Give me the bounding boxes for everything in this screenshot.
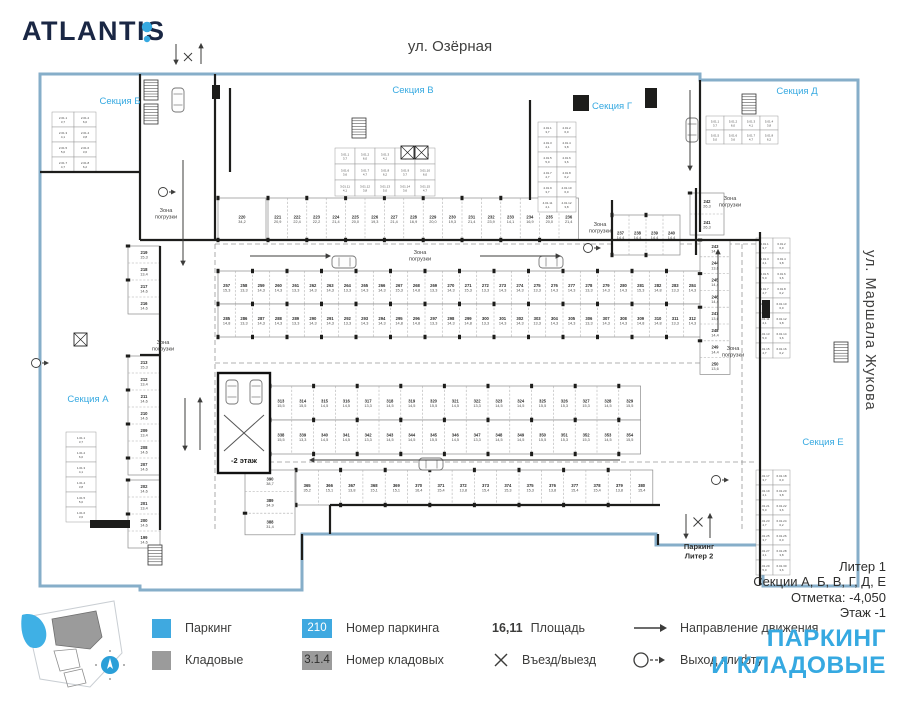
page-title: ПАРКИНГ И КЛАДОВЫЕ: [711, 625, 886, 680]
parking-stall-area: 14,3: [568, 322, 575, 326]
parking-stall-number: 241: [704, 220, 712, 225]
parking-stall-area: 14,3: [568, 289, 575, 293]
parking-stall-number: 276: [551, 283, 559, 288]
street-label-top: ул. Озёрная: [300, 38, 600, 55]
exit-liter2-label: ПаркингЛитер 2: [684, 542, 714, 561]
parking-stall-number: 285: [223, 316, 231, 321]
parking-stall-area: 15,5: [539, 438, 546, 442]
column-mark: [617, 418, 620, 422]
parking-stall-number: 299: [465, 316, 473, 321]
storage-area: 3,8: [564, 145, 569, 149]
section-label: Секция Д: [776, 86, 818, 97]
parking-stall-number: 217: [141, 284, 149, 289]
parking-stall-number: 221: [274, 215, 282, 220]
parking-row: 28514,828613,328714,328814,328913,329014…: [217, 302, 702, 339]
column-mark: [688, 192, 692, 195]
parking-stall-number: 210: [141, 411, 149, 416]
storage-area: 5,0: [762, 276, 767, 280]
parking-stall-area: 13,4: [140, 383, 147, 387]
parking-stall-number: 226: [371, 215, 379, 220]
parking-stall-area: 15,4: [437, 489, 444, 493]
parking-stall-number: 227: [391, 215, 399, 220]
parking-stall-area: 19,3: [371, 220, 378, 224]
parking-stall-area: 38,7: [266, 482, 273, 486]
parking-stall-number: 298: [447, 316, 455, 321]
parking-stall-area: 13,3: [533, 322, 540, 326]
column-mark: [389, 302, 392, 306]
parking-stall-number: 340: [321, 433, 329, 438]
parking-stall-area: 13,3: [533, 289, 540, 293]
parking-stall-area: 14,6: [140, 307, 147, 311]
parking-stall-number: 316: [343, 399, 351, 404]
entry-cross-icon: [492, 652, 510, 668]
zone-line1: Зона: [594, 222, 608, 228]
parking-stall-area: 16,9: [410, 220, 417, 224]
parking-stall-number: 303: [534, 316, 542, 321]
column-mark: [461, 196, 464, 200]
parking-stall-number: 308: [620, 316, 628, 321]
parking-stall-number: 284: [689, 283, 697, 288]
parking-stall-area: 14,5: [408, 404, 415, 408]
parking-stall-area: 15,3: [582, 438, 589, 442]
parking-stall-number: 257: [223, 283, 231, 288]
parking-stall-number: 389: [267, 498, 275, 503]
zone-line1: Зона: [727, 346, 741, 352]
parking-stall-number: 352: [583, 433, 591, 438]
column-mark: [355, 335, 358, 339]
parking-stall-number: 366: [326, 483, 334, 488]
parking-stall-number: 378: [594, 483, 602, 488]
section-label: Секция Б: [99, 96, 140, 107]
storage-area: 4,7: [762, 291, 767, 295]
parking-stall-number: 281: [637, 283, 645, 288]
parking-stall-number: 307: [603, 316, 611, 321]
parking-stall-number: 265: [361, 283, 369, 288]
parking-stall-area: 13,3: [292, 322, 299, 326]
storage-block: 2.01.13,72.01.26,02.01.34,12.01.43,82.01…: [52, 112, 96, 172]
parking-stall-number: 277: [568, 283, 576, 288]
parking-stall-number: 268: [413, 283, 421, 288]
column-mark: [312, 384, 315, 388]
parking-stall-number: 259: [258, 283, 266, 288]
parking-stall-number: 321: [452, 399, 460, 404]
column-mark: [527, 269, 530, 273]
parking-stall-area: 14,6: [140, 490, 147, 494]
parking-stall-area: 14,3: [326, 322, 333, 326]
parking-stall-area: 13,8: [460, 489, 467, 493]
stairs-icon: [834, 342, 848, 362]
column-mark: [665, 302, 668, 306]
ramp-label: -2 этаж: [231, 456, 258, 465]
storage-area: 3,7: [545, 190, 550, 194]
parking-stall-area: 13,3: [671, 322, 678, 326]
parking-stall-number: 270: [447, 283, 455, 288]
storage-block: 4.01.13,74.01.26,04.01.34,14.01.43,84.01…: [538, 122, 576, 212]
parking-stall-number: 314: [299, 399, 307, 404]
parking-stall-area: 14,8: [464, 322, 471, 326]
parking-stall-number: 390: [267, 476, 275, 481]
column-mark: [312, 418, 315, 422]
parking-stall-number: 236: [565, 215, 573, 220]
storage-area: 4,1: [762, 553, 767, 557]
parking-stall-area: 13,8: [616, 489, 623, 493]
parking-stall-area: 15,3: [504, 489, 511, 493]
stairs-icon: [742, 94, 756, 114]
parking-stall-number: 231: [468, 215, 476, 220]
wall-block: [762, 300, 770, 318]
parking-stall-number: 365: [304, 483, 312, 488]
storage-area: 6,0: [731, 123, 736, 127]
storage-area: 3,7: [762, 538, 767, 542]
column-mark: [286, 269, 289, 273]
column-mark: [617, 384, 620, 388]
parking-stall-number: 249: [712, 345, 720, 350]
column-mark: [356, 452, 359, 456]
parking-stall-area: 14,8: [654, 289, 661, 293]
zone-line1: Зона: [160, 208, 174, 214]
parking-stall-area: 14,3: [378, 322, 385, 326]
parking-stall-area: 13,3: [292, 289, 299, 293]
storage-area: 3,6: [79, 515, 84, 519]
parking-stall-area: 16,9: [526, 220, 533, 224]
parking-stall-number: 322: [474, 399, 482, 404]
storage-area: 6,0: [423, 172, 428, 176]
page-title-line2: И КЛАДОВЫЕ: [711, 652, 886, 679]
column-mark: [251, 335, 254, 339]
parking-stall-area: 14,3: [551, 289, 558, 293]
parking-stall-number: 367: [348, 483, 356, 488]
parking-stall-number: 291: [327, 316, 335, 321]
parking-stall-number: 368: [371, 483, 379, 488]
parking-stall-area: 14,3: [275, 289, 282, 293]
parking-stall-area: 14,5: [452, 404, 459, 408]
parking-stall-number: 218: [141, 267, 149, 272]
parking-stall-number: 289: [292, 316, 300, 321]
zone-line2: погрузки: [409, 257, 431, 263]
column-mark: [422, 196, 425, 200]
column-mark: [424, 335, 427, 339]
column-mark: [530, 384, 533, 388]
storage-area: 3,8: [767, 123, 772, 127]
column-mark: [527, 335, 530, 339]
parking-stall-area: 14,3: [326, 289, 333, 293]
parking-stall-number: 324: [517, 399, 525, 404]
parking-stall-area: 15,5: [539, 404, 546, 408]
column-mark: [443, 418, 446, 422]
parking-stall-area: 13,4: [140, 434, 147, 438]
storage-area: 4,1: [79, 470, 84, 474]
column-mark: [665, 269, 668, 273]
column-mark: [631, 269, 634, 273]
parking-stall-area: 20,0: [546, 220, 553, 224]
parking-stall-number: 269: [430, 283, 438, 288]
parking-stall-area: 14,5: [495, 404, 502, 408]
zone-line2: погрузки: [155, 215, 177, 221]
legend-storage-label: Кладовые: [185, 653, 243, 667]
parking-stall-area: 13,3: [473, 438, 480, 442]
parking-stall-number: 351: [561, 433, 569, 438]
parking-stall-area: 14,8: [637, 322, 644, 326]
parking-stall-number: 374: [504, 483, 512, 488]
column-mark: [243, 512, 247, 515]
parking-row: 25715,325813,325914,326014,326113,326214…: [217, 269, 702, 306]
storage-area: 3,8: [79, 485, 84, 489]
parking-stall-number: 348: [495, 433, 503, 438]
storage-area: 3,7: [343, 156, 348, 160]
storage-area: 4,7: [61, 165, 66, 169]
column-mark: [389, 269, 392, 273]
storage-area: 6,0: [779, 478, 784, 482]
parking-stall-area: 20,0: [352, 220, 359, 224]
zone-line2: погрузки: [719, 203, 741, 209]
storage-area: 3,7: [545, 130, 550, 134]
storage-area: 3,8: [363, 188, 368, 192]
parking-stall-area: 13,6: [711, 367, 718, 371]
parking-stall-area: 15,3: [464, 289, 471, 293]
parking-stall-area: 15,4: [593, 489, 600, 493]
building-outline-2: [54, 649, 80, 671]
column-mark: [607, 468, 610, 472]
column-mark: [251, 302, 254, 306]
parking-stall-area: 14,6: [140, 524, 147, 528]
lift-exit-circle: [159, 188, 168, 197]
lift-exit-icon: [632, 651, 668, 669]
parking-stall-area: 14,4: [711, 334, 718, 338]
parking-stall-number: 211: [141, 394, 148, 399]
parking-stall-number: 380: [638, 483, 646, 488]
parking-stall-area: 13,3: [671, 289, 678, 293]
parking-stall-area: 14,5: [321, 404, 328, 408]
car-body: [686, 118, 698, 142]
parking-stall-area: 14,3: [361, 322, 368, 326]
storage-area: 6,2: [779, 351, 784, 355]
storage-area: 5,0: [79, 500, 84, 504]
parking-stall-area: 19,3: [449, 220, 456, 224]
wall-block: [645, 88, 657, 108]
parking-stall-area: 13,4: [140, 273, 147, 277]
zone-line1: Зона: [157, 340, 171, 346]
storage-area: 3,8: [779, 493, 784, 497]
stairs-icon: [144, 104, 158, 124]
car-icon: [686, 118, 698, 142]
storage-area: 6,2: [779, 523, 784, 527]
parking-stall-number: 267: [396, 283, 404, 288]
car-icon: [172, 88, 184, 112]
parking-stall-number: 354: [626, 433, 634, 438]
info-sections: Секции А, Б, В, Г, Д, Е: [753, 574, 886, 589]
parking-stall-number: 208: [141, 445, 149, 450]
parking-stall-area: 14,3: [257, 322, 264, 326]
parking-stall-area: 15,5: [626, 438, 633, 442]
parking-stall-area: 21,4: [390, 220, 397, 224]
parking-stall-area: 26,3: [703, 205, 710, 209]
column-mark: [126, 245, 130, 248]
storage-area: 6,0: [564, 190, 569, 194]
parking-stall-number: 229: [429, 215, 437, 220]
parking-stall-area: 15,3: [223, 289, 230, 293]
parking-stall-area: 14,8: [413, 289, 420, 293]
parking-stall-number: 223: [313, 215, 321, 220]
storage-area: 6,0: [779, 246, 784, 250]
zone-line1: Зона: [724, 196, 738, 202]
parking-stall-number: 293: [361, 316, 369, 321]
wall-block: [90, 520, 130, 528]
car-body: [539, 256, 563, 268]
parking-stall-number: 263: [327, 283, 335, 288]
parking-stall-number: 200: [141, 518, 149, 523]
column-mark: [443, 384, 446, 388]
car-icon: [226, 380, 238, 404]
parking-stall-area: 15,5: [299, 404, 306, 408]
parking-stall-number: 212: [141, 377, 149, 382]
column-mark: [312, 452, 315, 456]
parking-stall-area: 13,3: [344, 322, 351, 326]
storage-area: 4,1: [545, 145, 550, 149]
column-mark: [530, 418, 533, 422]
parking-row: 39038,738934,938831,4: [243, 469, 295, 535]
column-mark: [473, 468, 476, 472]
column-mark: [424, 269, 427, 273]
zone-line1: Зона: [414, 250, 428, 256]
street-label-right: ул. Маршала Жукова: [862, 250, 878, 411]
parking-stall-area: 15,3: [561, 438, 568, 442]
storage-area: 4,1: [343, 188, 348, 192]
column-mark: [574, 384, 577, 388]
parking-stall-number: 313: [277, 399, 285, 404]
column-mark: [217, 335, 220, 339]
parking-stall-number: 213: [141, 360, 149, 365]
parking-stall-number: 271: [465, 283, 473, 288]
storage-area: 6,2: [564, 175, 569, 179]
parking-stall-area: 15,5: [277, 438, 284, 442]
parking-stall-area: 13,3: [364, 404, 371, 408]
parking-stall-area: 13,8: [348, 489, 355, 493]
parking-stall-number: 275: [534, 283, 542, 288]
column-mark: [126, 513, 130, 516]
exit-line1: Паркинг: [684, 542, 714, 551]
storage-area: 3,6: [83, 150, 88, 154]
parking-stall-area: 14,6: [140, 290, 147, 294]
parking-stall-number: 260: [275, 283, 283, 288]
column-mark: [562, 335, 565, 339]
car-icon: [332, 256, 356, 268]
parking-stall-area: 34,9: [266, 504, 273, 508]
parking-stall-area: 14,1: [507, 220, 514, 224]
column-mark: [267, 196, 270, 200]
parking-stall-area: 13,3: [430, 289, 437, 293]
parking-stall-area: 14,8: [395, 322, 402, 326]
parking-stall-area: 14,6: [140, 541, 147, 545]
parking-stall-number: 288: [275, 316, 283, 321]
parking-stall-number: 280: [620, 283, 628, 288]
parking-stall-area: 15,4: [482, 489, 489, 493]
parking-stall-area: 14,5: [517, 404, 524, 408]
parking-stall-number: 347: [474, 433, 482, 438]
section-label: Секция В: [392, 85, 433, 96]
column-mark: [527, 302, 530, 306]
column-mark: [645, 253, 648, 257]
parking-stall-number: 388: [267, 520, 275, 525]
column-mark: [399, 418, 402, 422]
parking-stall-number: 315: [321, 399, 329, 404]
parking-stall-number: 207: [141, 462, 149, 467]
parking-stall-area: 15,4: [571, 489, 578, 493]
column-mark: [499, 196, 502, 200]
parking-stall-area: 14,3: [361, 289, 368, 293]
building-footprint: [52, 611, 102, 649]
parking-stall-number: 328: [604, 399, 612, 404]
parking-row: 21915,321813,421714,621614,6: [126, 245, 160, 315]
parking-stall-area: 14,6: [140, 468, 147, 472]
parking-stall-area: 15,3: [395, 289, 402, 293]
parking-stall-number: 371: [437, 483, 445, 488]
parking-stall-area: 13,3: [430, 322, 437, 326]
column-mark: [217, 196, 220, 200]
parking-stall-number: 305: [568, 316, 576, 321]
storage-area: 4,7: [363, 172, 368, 176]
parking-stall-number: 373: [482, 483, 490, 488]
column-mark: [384, 468, 387, 472]
section-label: Секция Е: [802, 437, 843, 448]
parking-stall-number: 243: [712, 244, 720, 249]
elevator-icon: [415, 146, 428, 159]
storage-area: 3,8: [779, 553, 784, 557]
parking-stall-area: 21,4: [565, 220, 572, 224]
lake-shape: [21, 614, 46, 648]
parking-stall-number: 317: [365, 399, 373, 404]
parking-stall-area: 15,3: [140, 366, 147, 370]
column-mark: [574, 452, 577, 456]
parking-stall-number: 209: [141, 428, 149, 433]
legend-parking-label: Паркинг: [185, 621, 232, 635]
storage-area: 6,2: [779, 291, 784, 295]
storage-area: 4,1: [762, 493, 767, 497]
parking-stall-number: 375: [527, 483, 535, 488]
storage-area: 4,7: [423, 188, 428, 192]
column-mark: [698, 306, 702, 309]
storage-area: 3,7: [403, 172, 408, 176]
column-mark: [389, 335, 392, 339]
parking-stall-number: 290: [309, 316, 317, 321]
parking-stall-area: 14,3: [378, 289, 385, 293]
storage-area: 3,7: [79, 440, 84, 444]
column-mark: [399, 384, 402, 388]
parking-stall-number: 345: [430, 433, 438, 438]
parking-stall-number: 262: [309, 283, 317, 288]
parking-stall-number: 295: [396, 316, 404, 321]
column-mark: [518, 468, 521, 472]
parking-stall-area: 13,3: [482, 322, 489, 326]
parking-row: 20214,620113,420014,619914,6: [126, 479, 160, 549]
storage-area: 4,1: [383, 156, 388, 160]
parking-stall-area: 14,3: [620, 289, 627, 293]
parking-stall-number: 216: [141, 301, 149, 306]
parking-stall-area: 13,3: [240, 322, 247, 326]
parking-stall-number: 320: [430, 399, 438, 404]
parking-stall-number: 235: [546, 215, 554, 220]
storage-area: 3,8: [564, 205, 569, 209]
parking-stall-area: 14,3: [309, 322, 316, 326]
legend-area: 16,11 Площадь: [492, 618, 632, 638]
parking-stall-area: 14,3: [309, 289, 316, 293]
storage-area: 6,0: [779, 306, 784, 310]
storage-block: 5.01.13,75.01.26,05.01.34,15.01.43,85.01…: [706, 116, 778, 144]
column-mark: [645, 213, 648, 217]
storage-area: 6,2: [383, 172, 388, 176]
column-mark: [458, 269, 461, 273]
lift-exit-circle: [712, 476, 721, 485]
car-body: [332, 256, 356, 268]
